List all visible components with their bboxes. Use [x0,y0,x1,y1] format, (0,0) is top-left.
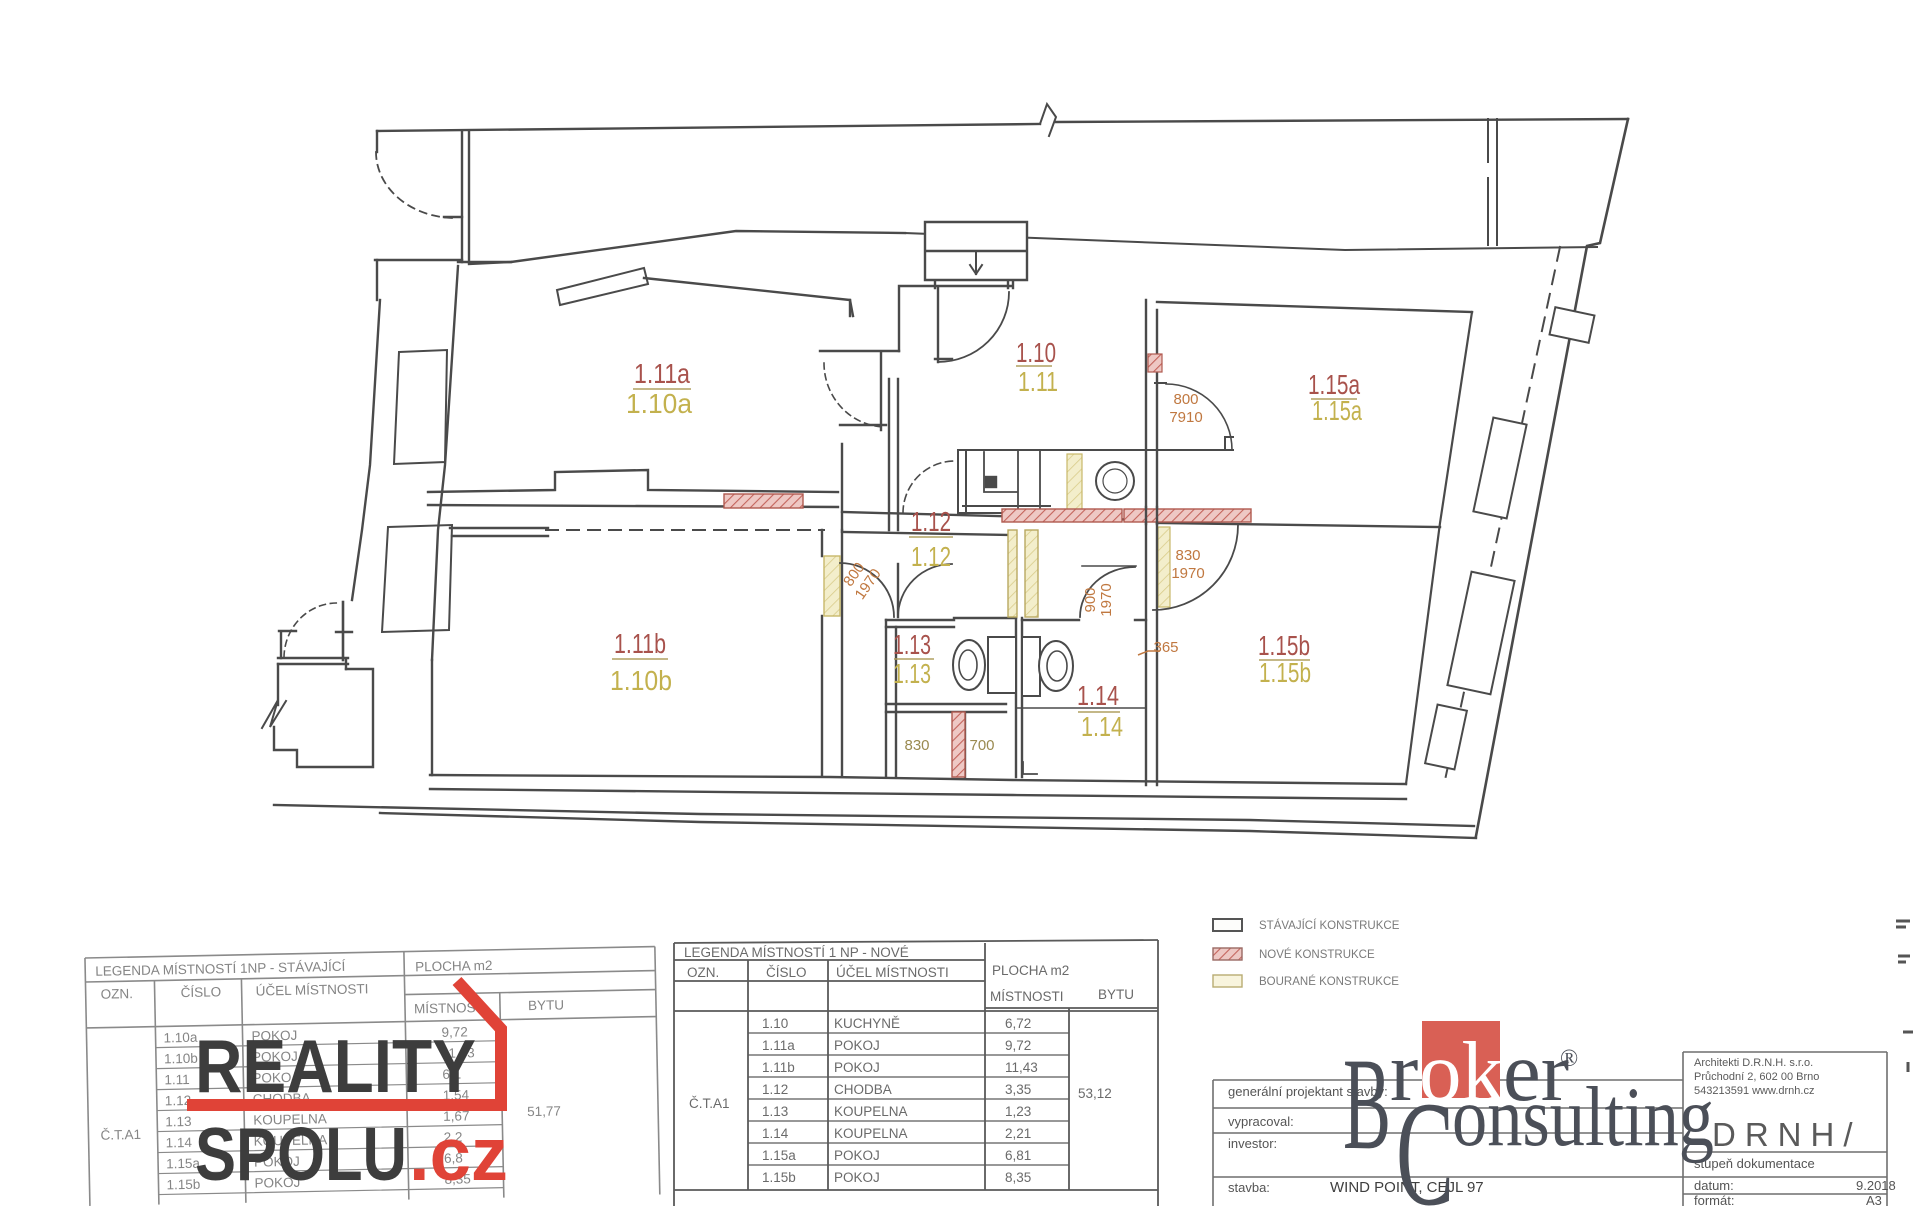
svg-text:C: C [1396,1071,1454,1206]
svg-text:®: ® [1560,1046,1578,1072]
svg-text:1.12: 1.12 [911,541,951,572]
svg-text:CHODBA: CHODBA [834,1082,892,1097]
svg-text:PLOCHA m2: PLOCHA m2 [415,958,493,975]
svg-text:8,35: 8,35 [1005,1170,1031,1185]
svg-text:formát:: formát: [1694,1193,1734,1206]
svg-text:1.10: 1.10 [762,1016,788,1031]
svg-text:1970: 1970 [1171,565,1204,582]
svg-text:1.12: 1.12 [762,1082,788,1097]
svg-text:stavba:: stavba: [1228,1180,1270,1195]
svg-text:1.10a: 1.10a [163,1030,198,1046]
svg-text:7910: 7910 [1169,409,1202,426]
svg-text:REALITY: REALITY [195,1024,476,1108]
svg-text:1.12: 1.12 [911,506,951,537]
svg-text:1.13: 1.13 [893,629,931,660]
svg-text:1.11: 1.11 [1018,366,1058,397]
svg-text:1.13: 1.13 [893,658,931,689]
svg-text:KOUPELNA: KOUPELNA [834,1126,908,1141]
svg-text:B: B [1343,1030,1391,1177]
svg-text:1.10a: 1.10a [626,388,692,419]
svg-text:vypracoval:: vypracoval: [1228,1114,1294,1129]
svg-text:POKOJ: POKOJ [834,1148,880,1163]
svg-text:1.11a: 1.11a [762,1038,795,1053]
svg-text:9,72: 9,72 [1005,1038,1031,1053]
svg-text:1.15b: 1.15b [1259,657,1311,688]
svg-text:DRNH/: DRNH/ [1712,1116,1862,1153]
svg-text:1.11b: 1.11b [614,628,666,659]
svg-text:1.15a: 1.15a [762,1148,796,1163]
svg-text:investor:: investor: [1228,1136,1277,1151]
svg-text:LEGENDA MÍSTNOSTÍ 1 NP - NOVÉ: LEGENDA MÍSTNOSTÍ 1 NP - NOVÉ [684,945,909,960]
svg-text:ČÍSLO: ČÍSLO [181,984,222,1000]
svg-text:NOVÉ KONSTRUKCE: NOVÉ KONSTRUKCE [1259,948,1375,961]
svg-text:BYTU: BYTU [528,997,564,1013]
svg-text:Č.T.A1: Č.T.A1 [100,1127,141,1143]
svg-text:OZN.: OZN. [687,965,719,980]
svg-text:Architekti D.R.N.H. s.r.o.: Architekti D.R.N.H. s.r.o. [1694,1057,1813,1069]
svg-text:datum:: datum: [1694,1178,1734,1193]
svg-text:1.11a: 1.11a [634,358,690,389]
svg-text:1970: 1970 [1098,583,1115,616]
svg-text:53,12: 53,12 [1078,1086,1112,1101]
svg-text:1.13: 1.13 [762,1104,788,1119]
svg-text:6,81: 6,81 [1005,1148,1031,1163]
svg-text:1.13: 1.13 [165,1114,192,1130]
svg-text:ÚČEL MÍSTNOSTI: ÚČEL MÍSTNOSTI [836,965,949,980]
svg-text:9.2018: 9.2018 [1856,1178,1896,1193]
svg-text:830: 830 [1175,547,1200,564]
svg-text:A3: A3 [1866,1193,1882,1206]
svg-text:KOUPELNA: KOUPELNA [834,1104,908,1119]
svg-text:6,72: 6,72 [1005,1016,1031,1031]
svg-text:POKOJ: POKOJ [834,1060,880,1075]
svg-text:1.10: 1.10 [1016,337,1056,368]
svg-text:POKOJ: POKOJ [834,1038,880,1053]
svg-text:.cz: .cz [409,1112,508,1196]
svg-text:KUCHYNĚ: KUCHYNĚ [834,1016,900,1031]
svg-text:700: 700 [969,737,994,754]
svg-text:BOURANÉ KONSTRUKCE: BOURANÉ KONSTRUKCE [1259,975,1399,988]
svg-text:OZN.: OZN. [101,986,134,1002]
svg-text:1.14: 1.14 [166,1135,193,1151]
svg-text:800: 800 [1173,391,1198,408]
svg-text:1.11b: 1.11b [762,1060,795,1075]
svg-text:900: 900 [1082,587,1099,612]
svg-text:STÁVAJÍCÍ KONSTRUKCE: STÁVAJÍCÍ KONSTRUKCE [1259,919,1400,932]
svg-text:onsulting: onsulting [1452,1070,1714,1164]
svg-text:MÍSTNOS: MÍSTNOS [414,1000,476,1016]
svg-text:POKOJ: POKOJ [834,1170,880,1185]
svg-text:1.14: 1.14 [762,1126,789,1141]
svg-text:1.11: 1.11 [164,1072,190,1088]
svg-text:51,77: 51,77 [527,1103,561,1119]
svg-text:SPOLU: SPOLU [195,1112,407,1196]
svg-text:1.10b: 1.10b [610,665,672,696]
svg-text:1.15b: 1.15b [762,1170,796,1185]
svg-text:1,23: 1,23 [1005,1104,1031,1119]
svg-text:1.14: 1.14 [1081,711,1123,742]
svg-text:365: 365 [1153,639,1178,656]
svg-text:ČÍSLO: ČÍSLO [766,965,807,980]
svg-text:MÍSTNOSTI: MÍSTNOSTI [990,989,1064,1004]
svg-text:Č.T.A1: Č.T.A1 [689,1096,730,1111]
svg-text:830: 830 [904,737,929,754]
svg-text:1.14: 1.14 [1077,680,1119,711]
svg-text:ÚČEL MÍSTNOSTI: ÚČEL MÍSTNOSTI [256,981,369,998]
svg-text:1.10b: 1.10b [164,1051,198,1067]
svg-text:PLOCHA m2: PLOCHA m2 [992,963,1069,978]
svg-text:3,35: 3,35 [1005,1082,1031,1097]
svg-text:11,43: 11,43 [1005,1060,1038,1075]
svg-text:2,21: 2,21 [1005,1126,1031,1141]
svg-text:BYTU: BYTU [1098,987,1134,1002]
svg-text:LEGENDA MÍSTNOSTÍ 1NP - STÁVAJ: LEGENDA MÍSTNOSTÍ 1NP - STÁVAJÍCÍ [95,959,346,979]
